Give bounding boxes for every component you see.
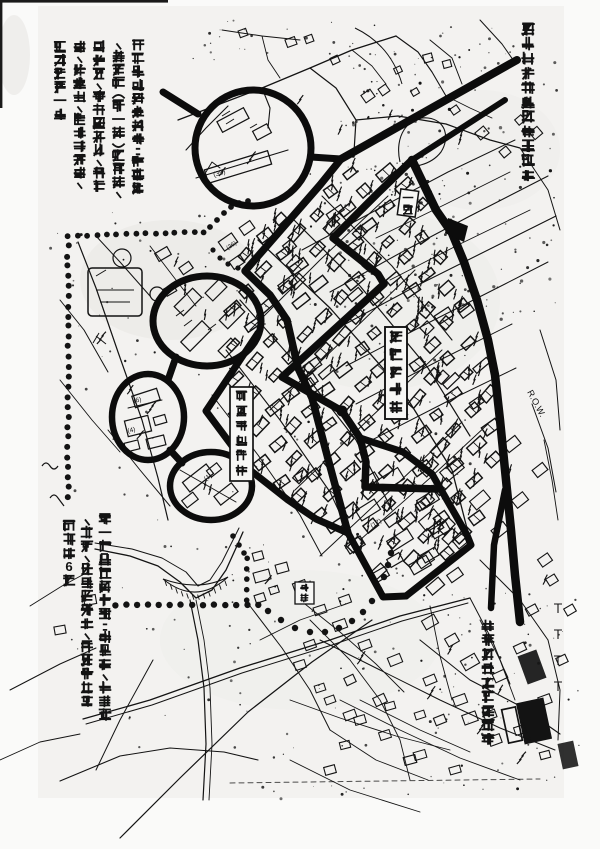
svg-text:6: 6 [65, 559, 72, 574]
